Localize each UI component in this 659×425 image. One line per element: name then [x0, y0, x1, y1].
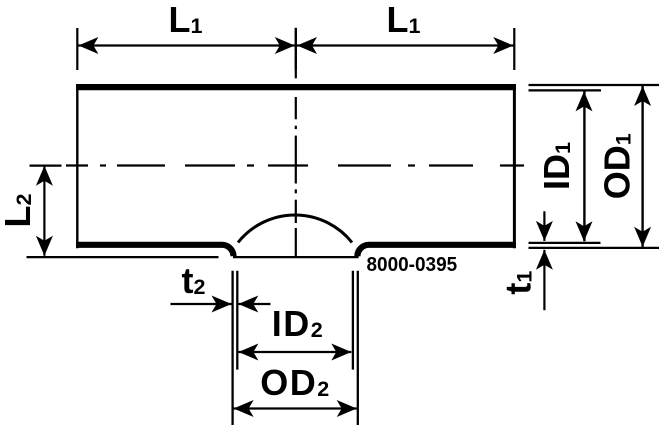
- svg-text:ID2: ID2: [272, 303, 324, 344]
- svg-text:ID1: ID1: [536, 142, 577, 190]
- svg-text:L2: L2: [0, 193, 38, 227]
- svg-text:OD2: OD2: [260, 362, 330, 403]
- svg-text:8000-0395: 8000-0395: [367, 253, 458, 276]
- svg-text:t2: t2: [182, 260, 206, 301]
- svg-text:L1: L1: [169, 0, 203, 40]
- svg-text:OD1: OD1: [596, 133, 637, 199]
- svg-text:L1: L1: [387, 0, 421, 40]
- svg-text:t1: t1: [498, 271, 539, 295]
